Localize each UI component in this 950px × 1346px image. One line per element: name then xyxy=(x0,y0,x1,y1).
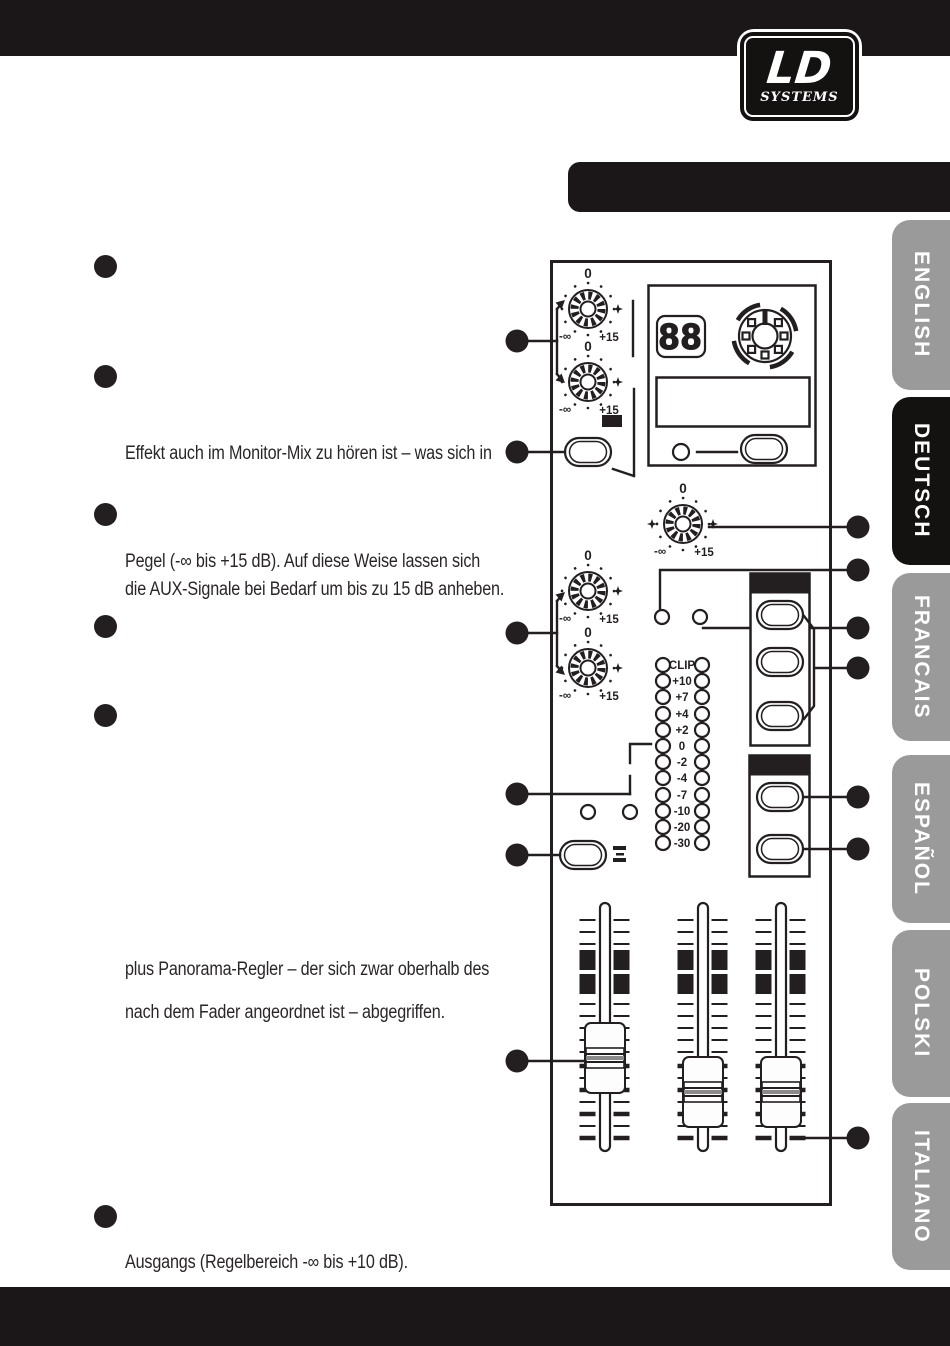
lcd-window xyxy=(657,378,810,427)
switch-block xyxy=(602,415,622,427)
callout-dot xyxy=(506,622,529,645)
tab-espanol-label: ESPAÑOL xyxy=(909,782,933,896)
button-column-1-header xyxy=(751,574,810,594)
callout-dot xyxy=(506,1050,529,1073)
tab-polski: POLSKI xyxy=(892,930,950,1097)
routing-button-2 xyxy=(757,835,803,863)
tab-espanol: ESPAÑOL xyxy=(892,755,950,923)
meter-label: -2 xyxy=(677,757,687,769)
meter-label: +4 xyxy=(675,709,689,721)
tab-italiano-label: ITALIANO xyxy=(909,1130,933,1244)
segment-display-value: 88 xyxy=(659,316,703,357)
select-button-1 xyxy=(757,601,803,629)
mute-button-top xyxy=(565,438,611,466)
callout-dot xyxy=(847,786,870,809)
callout-dot xyxy=(506,441,529,464)
fader-cap-3 xyxy=(761,1057,801,1127)
fader-cap-2 xyxy=(683,1057,723,1127)
phones-icon xyxy=(613,846,626,850)
tab-polski-label: POLSKI xyxy=(909,968,933,1058)
phones-icon xyxy=(613,858,626,862)
callout-dot xyxy=(847,1127,870,1150)
tab-francais: FRANCAIS xyxy=(892,573,950,741)
tab-deutsch: DEUTSCH xyxy=(892,397,950,565)
status-led-2 xyxy=(693,610,707,624)
mixer-diagram-svg: 0 -∞ +15 xyxy=(0,0,950,1346)
meter-label: 0 xyxy=(679,741,685,753)
callout-dot xyxy=(847,657,870,680)
fader-cap-1 xyxy=(585,1023,625,1093)
tab-italiano: ITALIANO xyxy=(892,1103,950,1270)
tab-deutsch-label: DEUTSCH xyxy=(909,423,933,539)
manual-page: LD SYSTEMS Effekt auch im Monitor-Mix zu… xyxy=(0,0,950,1346)
panel-led xyxy=(673,444,689,460)
meter-label: +2 xyxy=(675,725,688,737)
status-led-4 xyxy=(623,805,637,819)
callout-dot xyxy=(847,559,870,582)
meter-label: +10 xyxy=(672,676,692,688)
meter-label: -20 xyxy=(674,822,691,834)
callout-dot xyxy=(506,783,529,806)
mute-button-mid xyxy=(560,841,606,869)
tab-francais-label: FRANCAIS xyxy=(909,595,933,720)
select-button-2 xyxy=(757,648,803,676)
button-column-2-header xyxy=(750,756,810,776)
meter-label: -30 xyxy=(674,838,691,850)
tab-english: ENGLISH xyxy=(892,220,950,390)
meter-label: +7 xyxy=(675,692,688,704)
mixer-diagram: 88 xyxy=(506,262,870,1205)
callout-dot xyxy=(506,844,529,867)
callout-dot xyxy=(506,330,529,353)
meter-label: -4 xyxy=(677,773,688,785)
callout-dot xyxy=(847,838,870,861)
meter-label: -10 xyxy=(674,806,691,818)
panel-button xyxy=(741,435,787,463)
meter-label-clip: CLIP xyxy=(669,660,696,672)
status-led-1 xyxy=(655,610,669,624)
status-led-3 xyxy=(581,805,595,819)
select-button-3 xyxy=(757,702,803,730)
tab-english-label: ENGLISH xyxy=(909,251,933,358)
meter-label: -7 xyxy=(677,790,687,802)
routing-button-1 xyxy=(757,783,803,811)
callout-dot xyxy=(847,516,870,539)
display-panel xyxy=(649,286,816,466)
callout-dot xyxy=(847,617,870,640)
phones-icon xyxy=(616,853,624,856)
footer-bar xyxy=(0,1287,950,1346)
